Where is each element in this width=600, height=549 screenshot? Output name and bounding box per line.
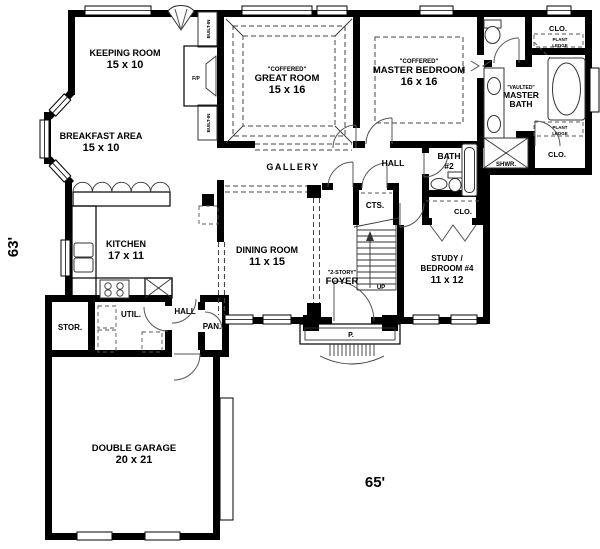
- kitchen-size: 17 x 11: [108, 250, 144, 262]
- master-bath-label-2: BATH: [510, 99, 533, 109]
- hall-side-label: HALL: [174, 307, 195, 316]
- study-label-2: BEDROOM #4: [421, 264, 474, 273]
- pantry-label: PAN.: [203, 322, 222, 331]
- porch-column-right: [382, 315, 398, 331]
- stairs-up-label: UP: [377, 285, 385, 291]
- utility-label: UTIL.: [121, 310, 141, 319]
- utility-door-arc: [144, 307, 168, 331]
- keeping-room-size: 15 x 10: [107, 59, 144, 71]
- column: [307, 303, 321, 317]
- bath2-toilet-tank: [448, 172, 462, 178]
- porch-step-curve: [320, 356, 384, 364]
- garage-door-arc: [174, 354, 200, 380]
- hall-closet-label: CLO.: [454, 207, 472, 216]
- bath2-label-1: BATH: [438, 151, 461, 161]
- gallery-door-arc: [333, 125, 356, 148]
- column-base: [199, 206, 218, 224]
- garage-vent: [77, 532, 112, 540]
- kitchen-label: KITCHEN: [106, 239, 146, 249]
- firebox: [206, 56, 216, 96]
- foyer-label: FOYER: [326, 276, 359, 287]
- width-dimension-label: 65': [365, 474, 385, 491]
- porch-steps: [330, 344, 374, 356]
- hall-rear-label: HALL: [382, 158, 405, 168]
- garage-side-stoop: [220, 398, 233, 520]
- builtin-bottom-label: BUILT-IN: [206, 114, 211, 133]
- floor-plan-page: KEEPING ROOM 15 x 10 BREAKFAST AREA 15 x…: [0, 0, 600, 549]
- master-bedroom-label: MASTER BEDROOM: [373, 65, 465, 76]
- toilet-bowl: [485, 27, 500, 44]
- gallery-label: GALLERY: [266, 162, 319, 172]
- storage-label: STOR.: [58, 323, 82, 332]
- bath2-toilet-bowl: [449, 179, 461, 192]
- height-dimension-label: 63': [5, 237, 22, 257]
- coats-closet-label: CTS.: [366, 201, 384, 210]
- kitchen-sink-bowl: [74, 258, 93, 272]
- plant-ledge-top-label-2: LEDGE: [552, 43, 568, 48]
- garage-vent: [145, 532, 180, 540]
- master-tub: [553, 63, 581, 115]
- vanity-sink: [488, 116, 501, 133]
- study-door-arc: [400, 203, 424, 227]
- closet-bottom-label: CLO.: [548, 150, 566, 159]
- keeping-room-label: KEEPING ROOM: [89, 48, 160, 58]
- dining-room-size: 11 x 15: [249, 256, 285, 268]
- column: [202, 194, 214, 206]
- bath2-label-2: #2: [444, 161, 454, 171]
- breakfast-area-label: BREAKFAST AREA: [60, 131, 143, 141]
- front-door-arc: [334, 281, 374, 321]
- bifold-closet-doors: [430, 225, 476, 241]
- washer: [98, 306, 116, 328]
- great-room-label: GREAT ROOM: [255, 73, 320, 84]
- column: [307, 185, 321, 198]
- builtin-top-label: BUILT-IN: [206, 20, 211, 39]
- stair-break-line: [354, 218, 399, 227]
- porch-label: P.: [348, 332, 354, 339]
- great-room-size: 15 x 16: [269, 84, 306, 96]
- master-bedroom-door-arc: [366, 118, 392, 144]
- breakfast-area-size: 15 x 10: [83, 142, 120, 154]
- kitchen-sink-bowl: [74, 243, 93, 257]
- plant-ledge-bottom-label-2: LEDGE: [552, 131, 568, 136]
- utility-appliance: [142, 332, 162, 352]
- study-size: 11 x 12: [431, 275, 464, 286]
- tub-window: [590, 68, 599, 112]
- garage-label: DOUBLE GARAGE: [92, 443, 176, 454]
- closet-top-label: CLO.: [549, 24, 567, 33]
- master-bedroom-size: 16 x 16: [401, 76, 438, 88]
- dryer: [98, 330, 116, 352]
- bar-counter: [73, 192, 170, 206]
- fireplace-label: F/P: [192, 76, 200, 82]
- staircase: [354, 218, 399, 290]
- plant-ledge-top-label-1: PLANT: [553, 37, 568, 42]
- floor-plan-drawing: KEEPING ROOM 15 x 10 BREAKFAST AREA 15 x…: [0, 0, 600, 549]
- bath2-tub-basin: [465, 148, 475, 193]
- bar-scallop-edge: [73, 182, 170, 192]
- arched-opening: [168, 5, 194, 30]
- plant-ledge-bottom-label-1: PLANT: [553, 125, 568, 130]
- shower-label: SHWR.: [496, 162, 516, 168]
- study-label-1: STUDY /: [431, 254, 463, 263]
- garage-size: 20 x 21: [116, 454, 153, 466]
- vanity-sink: [488, 78, 501, 95]
- dining-room-label: DINING ROOM: [236, 245, 298, 255]
- bath2-sink: [431, 179, 447, 190]
- stove: [100, 280, 129, 298]
